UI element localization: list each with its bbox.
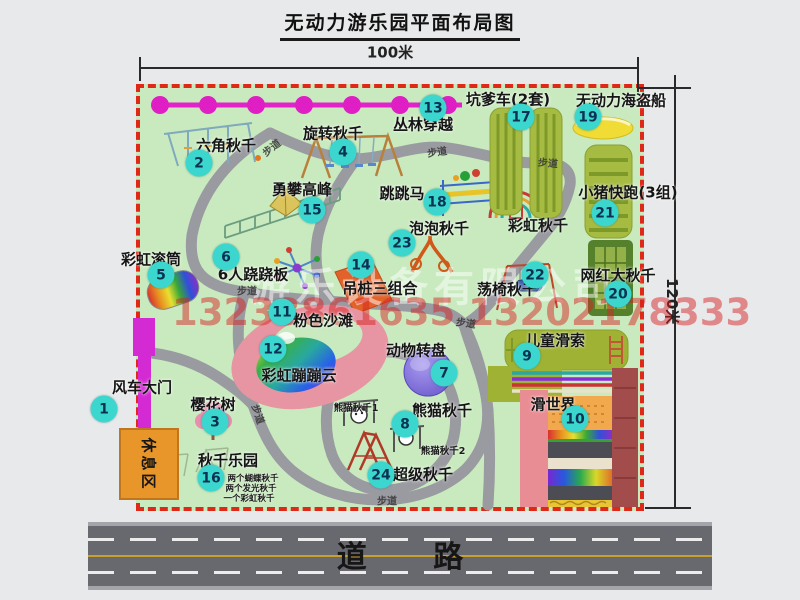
windmill-gate-structure [133, 318, 155, 428]
panda-swings-structure [340, 400, 424, 452]
top-dimension-tick-left [139, 57, 141, 81]
right-dimension-tick-bottom [645, 507, 691, 509]
piggy-run-pad [585, 145, 632, 238]
page-title: 无动力游乐园平面布局图 [280, 8, 519, 41]
top-dimension-line [140, 67, 638, 69]
children-zipline-band [505, 330, 628, 370]
right-dimension-tick-top [637, 87, 691, 89]
animal-turntable-structure [404, 348, 452, 396]
jungle-crossing-chain [151, 96, 462, 114]
stage: 无动力游乐园平面布局图 100米 120米 [0, 0, 800, 600]
item-badge-1: 1 [91, 396, 118, 423]
cherry-tree [195, 401, 232, 440]
page-title-wrap: 无动力游乐园平面布局图 [0, 8, 800, 41]
rest-area-label: 休息区 [138, 437, 159, 491]
rest-area-box: 休息区 [119, 428, 179, 500]
jumping-horse-structure [440, 169, 495, 216]
road: 道 路 [88, 522, 712, 590]
top-dimension-label: 100米 [367, 42, 413, 63]
road-label: 道 路 [88, 532, 712, 576]
watermark-phone: 13233861635 13202178333 [172, 291, 751, 334]
super-swing-structure [348, 433, 392, 470]
pirate-ship-structure [573, 117, 633, 139]
